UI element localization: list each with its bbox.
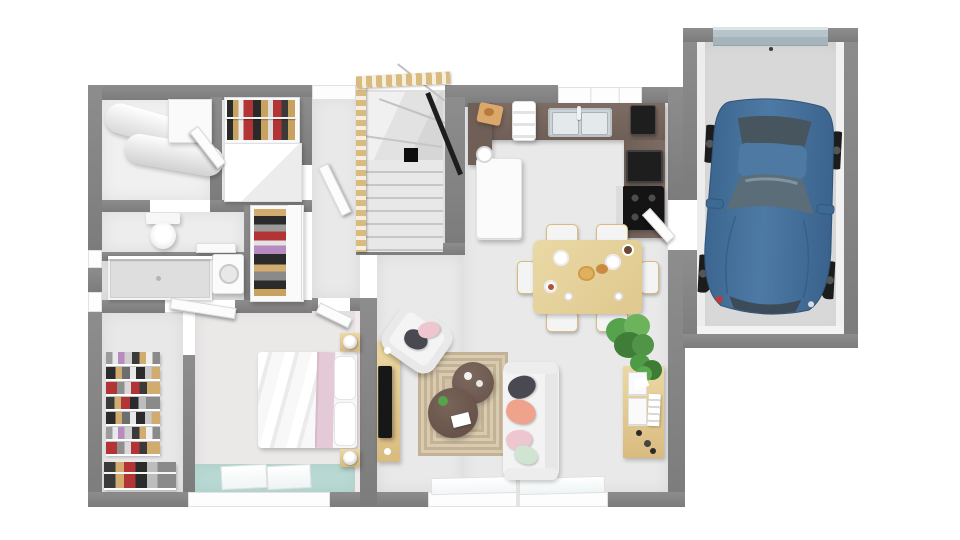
wall-bedroom-living [360, 298, 377, 507]
sofa-armrest-bottom [504, 468, 558, 480]
blue-car [696, 95, 843, 324]
outer-wall-bottom-mid [330, 492, 428, 507]
bed-pillow-2 [334, 402, 356, 446]
coffee-cup [624, 246, 632, 254]
bed-throw [315, 352, 336, 448]
garage-sectional-door [713, 26, 828, 46]
living-window-glass-1 [432, 477, 516, 494]
plate-1 [553, 250, 569, 266]
outer-wall-bottom-east [608, 492, 685, 507]
closet-shelf-row-7 [106, 442, 160, 454]
shower-drain [156, 276, 161, 281]
closet-rod [226, 117, 296, 119]
outer-wall-left-2 [88, 268, 102, 292]
coffee-table-cup2 [476, 380, 483, 387]
closet-shelf-row-4 [106, 397, 160, 409]
bread-loaf [484, 108, 494, 116]
car-mirror-right [817, 204, 834, 214]
sink-bowl-left [552, 112, 579, 135]
outer-wall-bottom-west [88, 492, 188, 507]
wardrobe-open-door [288, 205, 302, 300]
mug-2 [614, 292, 623, 301]
car-mirror-left [706, 199, 723, 209]
wall-closet-bedroom [183, 355, 195, 492]
bread-basket [578, 266, 595, 281]
garage-wall-bottom [683, 334, 858, 348]
dining-chair-right [640, 261, 659, 294]
bedroom-window-glass-2 [267, 465, 310, 489]
bed-pillow-1 [334, 356, 356, 400]
stair-railing-top [356, 72, 450, 89]
closet-rod-bottom [104, 472, 176, 474]
sink-bowl-right [581, 112, 608, 135]
television [378, 366, 392, 438]
croissant [596, 264, 608, 274]
jam-dot [548, 284, 554, 290]
closet-bottom-rack [104, 462, 176, 488]
wall-bath-south-a [102, 300, 165, 313]
sofa-backrest [545, 364, 558, 478]
nightstand-lamp-bottom [343, 451, 357, 465]
stair-landing-marker [404, 148, 418, 162]
garage-door-handle [769, 47, 773, 51]
wall-stairs-east [445, 97, 465, 243]
garage-wall-face-bottom [697, 326, 844, 334]
bathroom-window-2 [88, 292, 102, 312]
closet-shelf-row-3 [106, 382, 160, 394]
sofa-armrest-top [504, 362, 558, 374]
garage-wall-top-stub-left [683, 28, 713, 42]
living-window-bottom [428, 492, 608, 507]
sideboard-speaker-2 [384, 448, 391, 455]
car-roof [738, 142, 808, 180]
desk-drawer-2 [628, 398, 647, 426]
sideboard-speaker-1 [384, 347, 391, 354]
dining-chair-bottom-1 [546, 311, 578, 332]
staircase-treads [358, 160, 443, 252]
desk-item-2 [644, 440, 651, 447]
outer-wall-left-1 [88, 85, 102, 250]
built-in-oven [626, 150, 663, 183]
closet-shelf-row-5 [106, 412, 160, 424]
bedroom-window-bottom [188, 492, 330, 507]
floor-plan-render [0, 0, 960, 540]
coffee-table-cups [464, 372, 472, 380]
garage-wall-left-upper [683, 28, 697, 200]
dish-stack [512, 101, 536, 141]
hanging-clothes-rack [227, 100, 295, 140]
desk-item-1 [636, 430, 642, 436]
front-door-opening [312, 85, 356, 100]
toilet-bowl [150, 222, 176, 249]
garage-wall-right [844, 28, 858, 348]
coffee-table-large [428, 388, 478, 438]
nightstand-lamp-top [343, 335, 357, 349]
shower-glass-edge [108, 256, 212, 259]
garage-wall-top-stub-right [828, 28, 858, 42]
washing-machine-door [219, 264, 239, 284]
table-plant [438, 396, 448, 406]
sink-faucet [577, 106, 581, 120]
bedroom-window-glass-1 [221, 465, 266, 489]
mug-1 [564, 292, 573, 301]
outer-wall-left-3 [88, 312, 102, 507]
bathroom-window-1 [88, 250, 102, 268]
closet-shelf-row-2 [106, 367, 160, 379]
closet-shelf-row-1 [106, 352, 160, 364]
wall-utility-south-a [102, 200, 150, 212]
wc-shelf [196, 243, 236, 253]
hall-closet-lower [224, 143, 302, 202]
stair-railing-left [356, 80, 366, 252]
coffee-machine [630, 105, 656, 135]
mug-on-counter [476, 146, 493, 163]
closet-shelf-row-6 [106, 427, 160, 439]
wardrobe-clothes [254, 209, 286, 296]
desk-item-3 [650, 448, 656, 454]
desk-books [647, 394, 661, 427]
refrigerator [476, 158, 522, 240]
